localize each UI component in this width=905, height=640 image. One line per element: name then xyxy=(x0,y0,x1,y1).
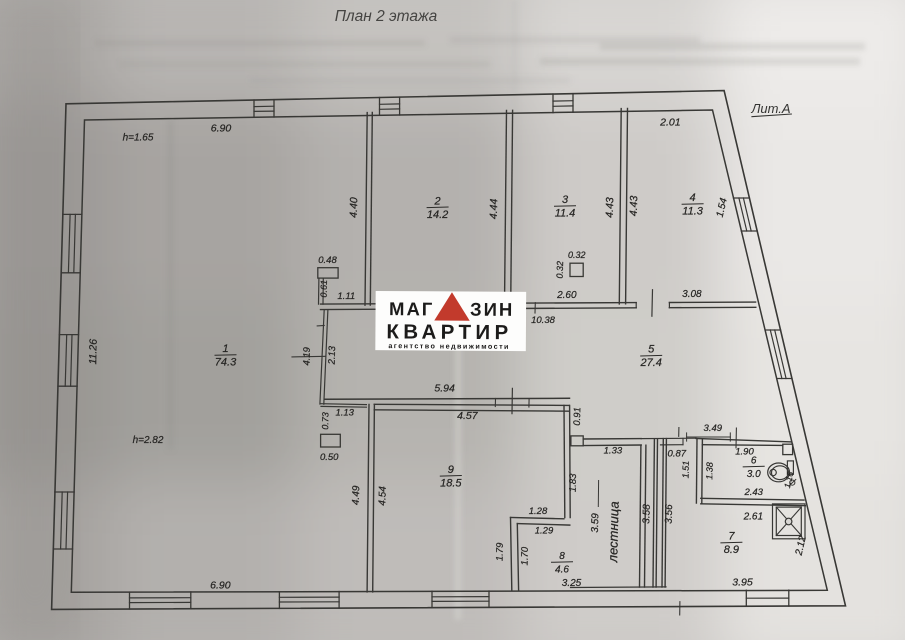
svg-text:1.51: 1.51 xyxy=(680,461,690,479)
svg-text:3.56: 3.56 xyxy=(664,504,675,524)
svg-text:3.25: 3.25 xyxy=(562,578,582,589)
svg-text:0.73: 0.73 xyxy=(320,412,330,430)
svg-text:11.3: 11.3 xyxy=(682,206,703,218)
svg-text:1.29: 1.29 xyxy=(535,526,554,537)
svg-text:8: 8 xyxy=(559,551,565,562)
svg-text:0.61: 0.61 xyxy=(319,280,329,298)
svg-text:0.32: 0.32 xyxy=(568,250,586,260)
svg-text:5: 5 xyxy=(648,344,655,356)
svg-text:4.43: 4.43 xyxy=(604,197,616,218)
svg-text:3.59: 3.59 xyxy=(590,513,601,533)
svg-text:3: 3 xyxy=(562,194,569,206)
svg-text:2.60: 2.60 xyxy=(556,290,577,301)
svg-text:4.57: 4.57 xyxy=(457,410,479,422)
svg-text:2.43: 2.43 xyxy=(743,487,763,498)
svg-text:14.2: 14.2 xyxy=(427,209,448,221)
svg-text:1.90: 1.90 xyxy=(735,446,754,457)
svg-text:0.32: 0.32 xyxy=(555,261,565,279)
svg-text:План 2 этажа: План 2 этажа xyxy=(335,8,438,25)
svg-text:2: 2 xyxy=(434,195,441,207)
svg-text:0.91: 0.91 xyxy=(572,407,583,426)
svg-text:27.4: 27.4 xyxy=(639,357,661,369)
svg-text:агентство недвижимости: агентство недвижимости xyxy=(388,341,510,351)
svg-text:3.95: 3.95 xyxy=(732,577,753,589)
svg-text:2.13: 2.13 xyxy=(327,345,338,365)
svg-text:h=2.82: h=2.82 xyxy=(133,435,164,446)
svg-text:h=1.65: h=1.65 xyxy=(123,133,154,144)
svg-text:1.13: 1.13 xyxy=(335,407,354,418)
svg-text:1.70: 1.70 xyxy=(519,546,530,565)
svg-text:4.49: 4.49 xyxy=(351,485,362,505)
svg-text:8.9: 8.9 xyxy=(724,544,739,556)
svg-text:1: 1 xyxy=(222,343,228,355)
svg-text:0.50: 0.50 xyxy=(320,452,339,463)
svg-text:4.40: 4.40 xyxy=(348,197,360,218)
svg-text:6.90: 6.90 xyxy=(210,580,231,592)
svg-text:лестница: лестница xyxy=(605,501,622,563)
svg-text:1.11: 1.11 xyxy=(337,291,355,302)
svg-text:11.26: 11.26 xyxy=(87,339,100,365)
svg-text:10.38: 10.38 xyxy=(531,315,555,326)
svg-text:11.4: 11.4 xyxy=(555,208,576,220)
svg-text:1.28: 1.28 xyxy=(529,506,548,517)
svg-text:7: 7 xyxy=(728,531,735,543)
svg-text:1.33: 1.33 xyxy=(604,446,623,457)
svg-text:6.90: 6.90 xyxy=(211,123,232,135)
svg-text:2.01: 2.01 xyxy=(659,117,680,129)
svg-text:2.61: 2.61 xyxy=(743,511,763,522)
svg-text:4.54: 4.54 xyxy=(377,486,388,506)
svg-text:3.0: 3.0 xyxy=(747,469,761,480)
svg-text:5.94: 5.94 xyxy=(434,382,455,394)
svg-text:1.83: 1.83 xyxy=(568,473,579,492)
svg-text:4.6: 4.6 xyxy=(555,565,569,576)
svg-text:9: 9 xyxy=(448,464,454,476)
svg-text:18.5: 18.5 xyxy=(440,477,462,489)
svg-text:Лит.А: Лит.А xyxy=(750,101,790,116)
svg-text:0.48: 0.48 xyxy=(318,255,337,266)
svg-text:1.79: 1.79 xyxy=(494,542,505,561)
svg-text:3.58: 3.58 xyxy=(641,504,652,524)
svg-text:74.3: 74.3 xyxy=(215,357,237,369)
svg-text:ЗИН: ЗИН xyxy=(470,299,514,320)
svg-text:0.87: 0.87 xyxy=(668,448,687,459)
svg-text:1.38: 1.38 xyxy=(704,462,714,480)
svg-text:3.49: 3.49 xyxy=(704,423,723,434)
svg-text:4.44: 4.44 xyxy=(488,198,500,219)
svg-text:3.08: 3.08 xyxy=(682,289,702,300)
svg-text:4.43: 4.43 xyxy=(628,195,640,216)
svg-text:4: 4 xyxy=(690,192,696,204)
svg-text:4.19: 4.19 xyxy=(301,346,312,365)
svg-text:МАГ: МАГ xyxy=(389,298,434,319)
